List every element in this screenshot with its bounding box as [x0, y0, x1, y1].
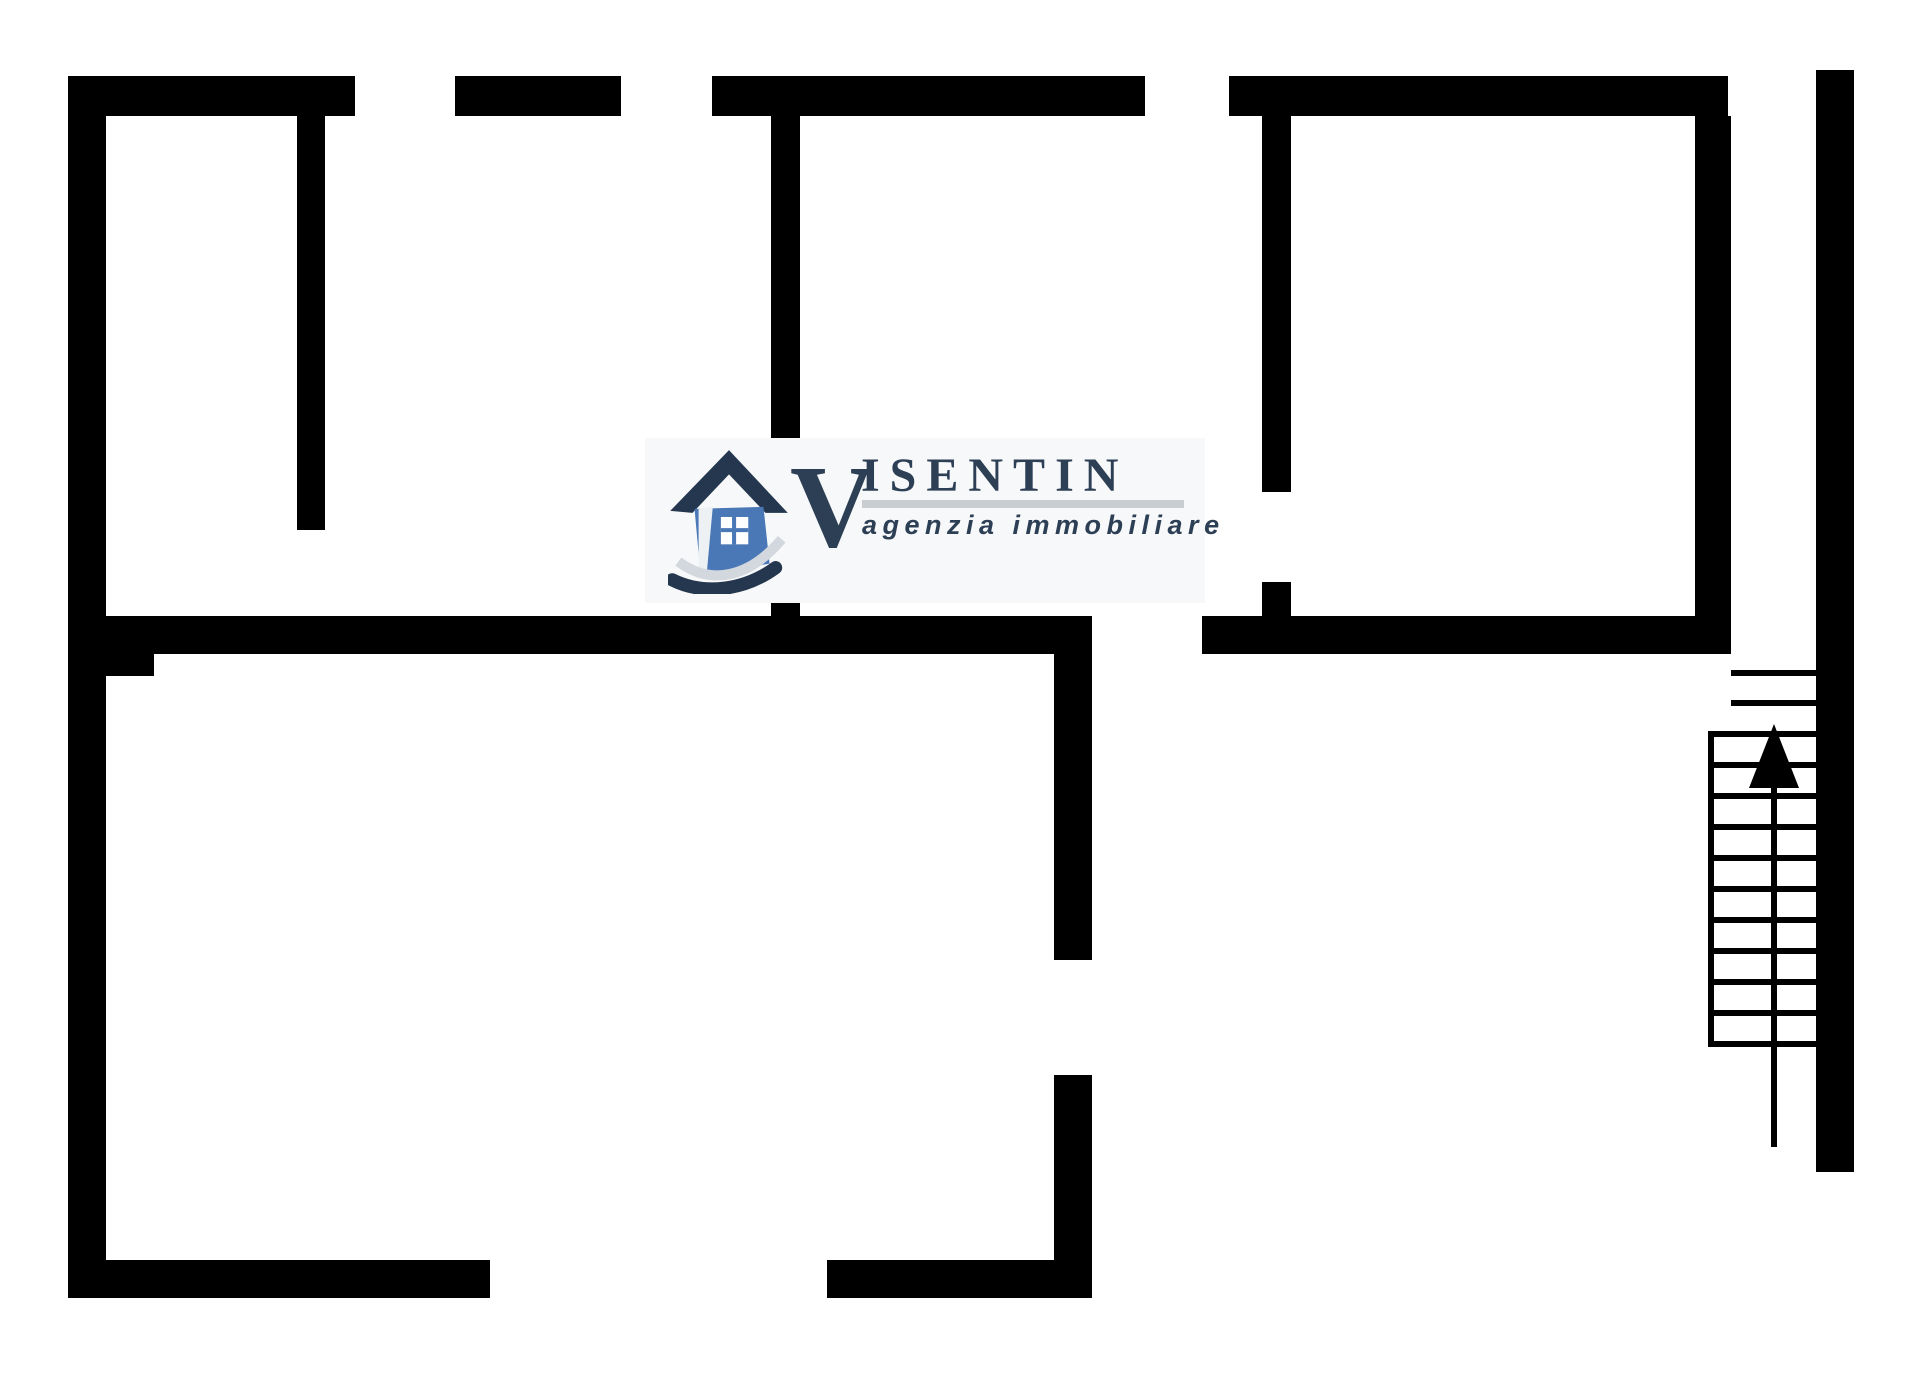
- stairs-tread-5: [1714, 793, 1816, 799]
- stairs-tread-13: [1708, 1041, 1816, 1047]
- room-a-right-wall: [297, 116, 325, 530]
- right-outer-wall: [1816, 70, 1854, 1172]
- room-b-left-wall-upper: [771, 116, 800, 445]
- top-wall-segment-3: [712, 76, 1145, 116]
- logo-underline: [862, 500, 1184, 508]
- top-wall-segment-2: [455, 76, 621, 116]
- stairs-tread-9: [1714, 917, 1816, 923]
- room-c-right-wall: [1695, 116, 1731, 654]
- logo-brand-name: ISENTIN: [861, 452, 1128, 500]
- stairs-tread-12: [1714, 1010, 1816, 1016]
- stairs-tread-1: [1731, 670, 1816, 676]
- left-outer-wall: [68, 76, 106, 1298]
- top-wall-segment-1: [68, 76, 355, 116]
- stairs-tread-6: [1714, 824, 1816, 830]
- house-logo-icon: [668, 444, 790, 594]
- logo-tagline: agenzia immobiliare: [862, 512, 1225, 539]
- mid-wall-left-notch: [106, 654, 154, 676]
- stairs-tread-8: [1714, 886, 1816, 892]
- middle-divider-wall-upper: [1054, 654, 1092, 960]
- stairs-up-arrow-icon: [1749, 724, 1799, 788]
- top-wall-segment-4: [1229, 76, 1728, 116]
- stairs-tread-11: [1714, 979, 1816, 985]
- stairs-tread-7: [1714, 855, 1816, 861]
- stairs-tread-10: [1714, 948, 1816, 954]
- mid-wall-left: [68, 616, 1092, 654]
- stairs-center-line: [1771, 786, 1777, 1147]
- bottom-wall-left: [68, 1260, 490, 1298]
- stairs-tread-2: [1731, 700, 1816, 706]
- floor-plan-page: V ISENTIN agenzia immobiliare: [0, 0, 1920, 1383]
- mid-wall-right: [1202, 616, 1731, 654]
- room-c-left-wall-upper: [1262, 116, 1291, 492]
- bottom-wall-middle: [827, 1260, 1092, 1298]
- agency-watermark: V ISENTIN agenzia immobiliare: [645, 438, 1205, 603]
